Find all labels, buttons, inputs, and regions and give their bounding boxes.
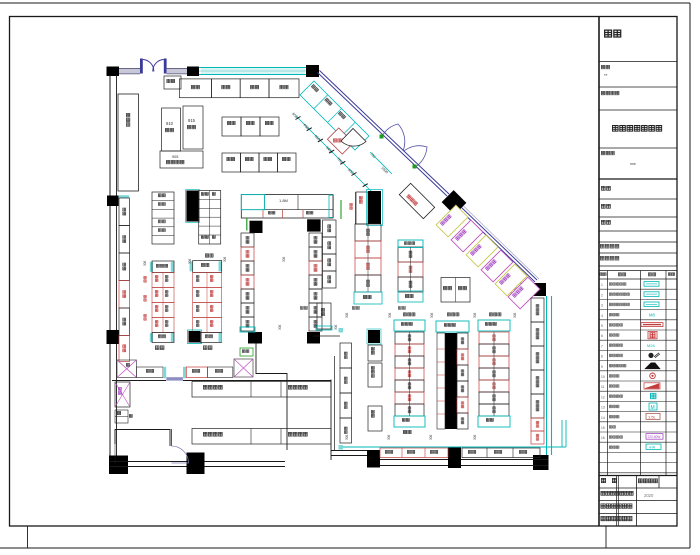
svg-text:915: 915 — [188, 118, 196, 123]
svg-text:4: 4 — [601, 314, 603, 318]
svg-text:220-60W: 220-60W — [648, 435, 661, 439]
svg-text:306: 306 — [473, 434, 477, 440]
svg-text:M: M — [651, 405, 655, 411]
svg-text:2020: 2020 — [644, 493, 654, 498]
svg-text:306: 306 — [388, 312, 392, 318]
svg-text:12: 12 — [601, 395, 605, 399]
svg-text:306: 306 — [223, 256, 227, 262]
svg-text:11: 11 — [601, 385, 605, 389]
svg-text:**: ** — [604, 73, 608, 78]
svg-text:3: 3 — [601, 304, 603, 308]
svg-text:306: 306 — [345, 312, 349, 318]
svg-text:306: 306 — [278, 324, 282, 330]
svg-text:13: 13 — [601, 406, 605, 410]
svg-text:306: 306 — [387, 434, 391, 440]
svg-text:306: 306 — [334, 324, 338, 330]
svg-text:7: 7 — [601, 344, 603, 348]
svg-text:306: 306 — [188, 258, 192, 264]
svg-text:9: 9 — [601, 365, 603, 369]
svg-text:16: 16 — [601, 436, 605, 440]
svg-text:306: 306 — [429, 434, 433, 440]
svg-text:***: *** — [630, 163, 636, 169]
svg-text:306: 306 — [513, 312, 517, 318]
svg-text:306: 306 — [143, 260, 147, 266]
svg-text:306: 306 — [430, 312, 434, 318]
svg-text:905: 905 — [172, 155, 178, 159]
svg-text:M24: M24 — [647, 343, 656, 348]
svg-text:1.5L: 1.5L — [648, 414, 657, 419]
svg-text:1.8M: 1.8M — [279, 198, 288, 203]
svg-text:8: 8 — [601, 355, 603, 359]
svg-text:2: 2 — [601, 293, 603, 297]
svg-text:306: 306 — [473, 312, 477, 318]
svg-text:10: 10 — [601, 375, 605, 379]
svg-text:6: 6 — [601, 334, 603, 338]
svg-text:15: 15 — [601, 426, 605, 430]
svg-text:4-W: 4-W — [649, 446, 656, 450]
svg-text:14: 14 — [601, 416, 605, 420]
svg-text:910: 910 — [166, 121, 174, 126]
svg-text:1: 1 — [601, 283, 603, 287]
svg-text:306: 306 — [345, 434, 349, 440]
svg-text:306: 306 — [282, 256, 286, 262]
svg-text:5: 5 — [601, 324, 603, 328]
svg-text:M8: M8 — [649, 313, 655, 318]
